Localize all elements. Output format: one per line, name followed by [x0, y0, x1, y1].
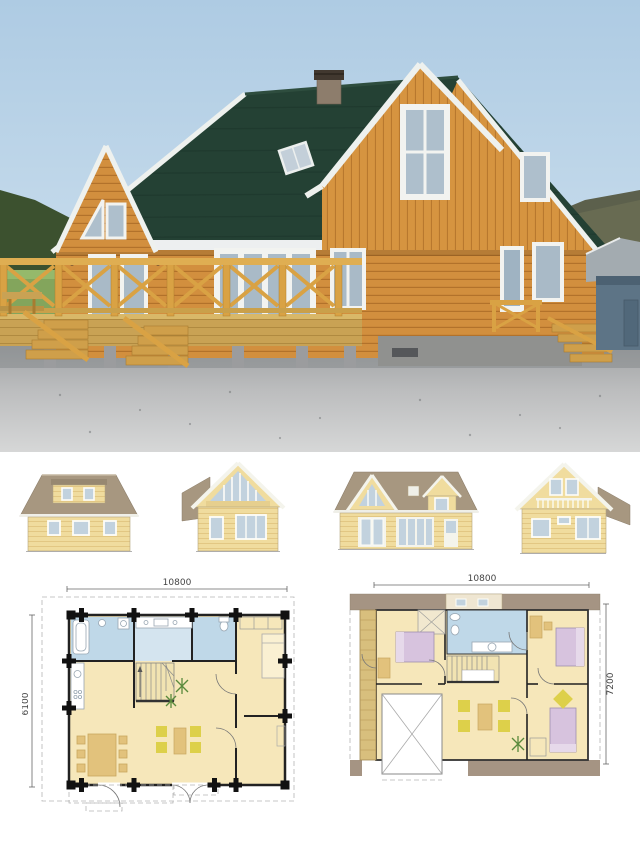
gable — [518, 465, 610, 509]
upper-width-label: 10800 — [468, 574, 497, 584]
house-photo — [0, 0, 640, 452]
side-windows — [210, 515, 266, 539]
roof-stub — [350, 760, 362, 776]
dining-set — [77, 734, 127, 776]
bathroom — [447, 610, 527, 654]
upper-depth-label: 7200 — [606, 672, 616, 695]
dormer-notch — [446, 594, 502, 610]
ground-depth-label: 6100 — [22, 692, 31, 715]
staircase — [136, 663, 174, 701]
staircase — [447, 656, 499, 682]
rear-windows — [48, 521, 116, 535]
upper-floor-plan: 10800 7200 — [342, 572, 622, 794]
terrace-outline — [69, 785, 218, 811]
shed-door — [624, 300, 638, 346]
roof-slope-bottom — [468, 760, 600, 776]
roof-skylight — [408, 486, 419, 496]
balcony — [360, 610, 376, 760]
ground-floor-plan: 10800 6100 — [22, 576, 312, 816]
dimension-depth: 7200 — [603, 604, 616, 764]
chimney — [314, 70, 344, 104]
void-opening — [382, 694, 442, 780]
dimension-depth: 6100 — [22, 615, 35, 787]
dimension-width: 10800 — [374, 574, 589, 588]
elevation-rear — [18, 462, 140, 558]
ground-width-label: 10800 — [163, 578, 192, 588]
dimension-width: 10800 — [67, 578, 287, 592]
elevation-side-right — [506, 459, 632, 559]
elevation-front — [332, 462, 480, 558]
closet — [418, 610, 445, 634]
gable-window — [107, 204, 125, 238]
elevation-side-left — [180, 459, 297, 559]
house-brochure-page: 10800 6100 — [0, 0, 640, 857]
shed-dormer — [51, 479, 107, 503]
vent-grille — [392, 348, 418, 357]
